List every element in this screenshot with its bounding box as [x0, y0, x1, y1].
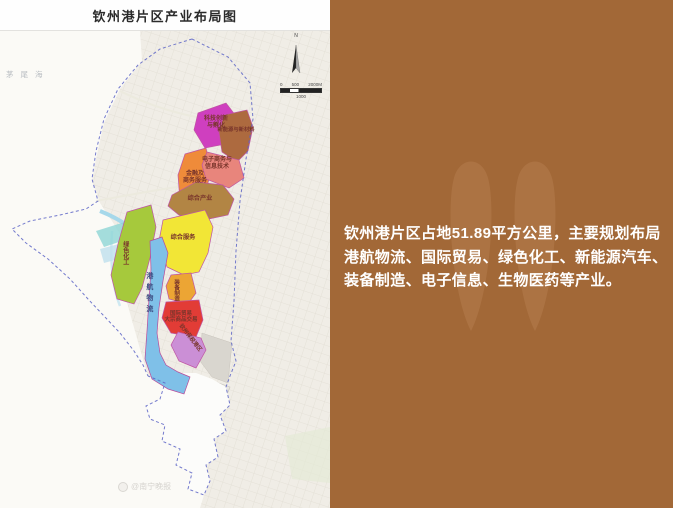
scale-tick-2000m: 2000M — [308, 82, 322, 87]
description-line-3: 装备制造、电子信息、生物医药等产业。 — [344, 269, 666, 293]
description-text: 钦州港片区占地51.89平方公里，主要规划布局 港航物流、国际贸易、绿色化工、新… — [344, 222, 666, 293]
map-drawing — [0, 31, 330, 508]
screenshot-root: 钦州港片区产业布局图 — [0, 0, 673, 508]
map-title-bar: 钦州港片区产业布局图 — [0, 0, 330, 31]
watermark-logo-icon — [118, 482, 128, 492]
scale-tick-1000: 1000 — [280, 94, 322, 99]
watermark-text: @南宁晚报 — [131, 481, 171, 492]
scale-tick-500: 500 — [292, 82, 300, 87]
zone-equipment-manufacturing — [166, 273, 196, 304]
info-panel: 钦州港片区占地51.89平方公里，主要规划布局 港航物流、国际贸易、绿色化工、新… — [330, 0, 673, 508]
greenery-patch — [285, 427, 330, 483]
description-line-2: 港航物流、国际贸易、绿色化工、新能源汽车、 — [344, 246, 666, 270]
map-title: 钦州港片区产业布局图 — [92, 6, 237, 25]
scale-bar: 0 500 2000M 1000 — [280, 82, 322, 99]
map-panel: 钦州港片区产业布局图 — [0, 0, 330, 508]
map-area: 茅尾海 科技创新 与孵化 新能源与新材料 金融及 商务服务 电子商务与 信息技术… — [0, 31, 330, 508]
scale-tick-0: 0 — [280, 82, 283, 87]
map-watermark: @南宁晚报 — [118, 481, 171, 492]
scale-bar-rule — [280, 88, 322, 93]
description-line-1: 钦州港片区占地51.89平方公里，主要规划布局 — [344, 222, 666, 246]
